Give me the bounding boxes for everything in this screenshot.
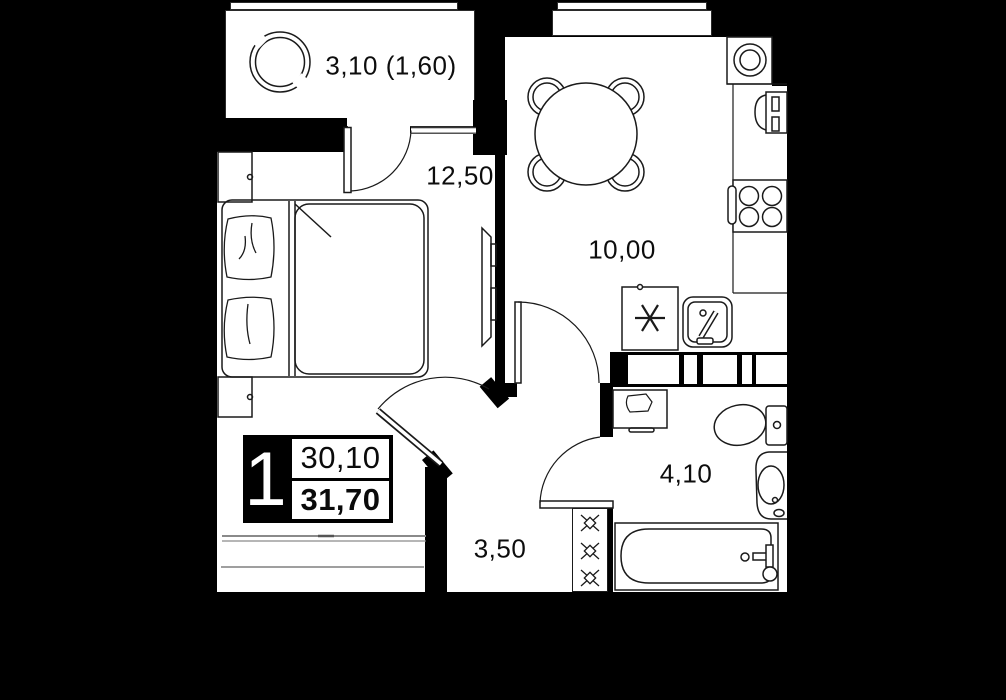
pillows bbox=[224, 216, 274, 360]
balcony-chair bbox=[249, 30, 310, 92]
nightstand-bottom bbox=[218, 377, 253, 417]
room-count: 1 bbox=[244, 436, 286, 523]
balcony-area-label: 3,10 (1,60) bbox=[325, 51, 456, 82]
wardrobe bbox=[221, 536, 426, 567]
plan-linework bbox=[0, 0, 1006, 700]
door-swing-arc bbox=[540, 437, 600, 503]
hallway-area-label: 3,50 bbox=[474, 534, 527, 565]
bedroom-door bbox=[378, 377, 509, 483]
bedroom-area-label: 12,50 bbox=[426, 161, 494, 192]
toilet bbox=[710, 400, 787, 450]
nightstand-top bbox=[218, 152, 253, 202]
vent-shaft-marks bbox=[581, 515, 599, 586]
door-swing-arc bbox=[378, 377, 489, 409]
door-swing-arc bbox=[351, 131, 411, 192]
oven bbox=[755, 92, 787, 133]
bathroom-fixtures bbox=[613, 390, 787, 590]
bathroom-door bbox=[540, 437, 613, 508]
bed bbox=[222, 200, 428, 377]
stove bbox=[728, 180, 787, 232]
tv bbox=[482, 228, 496, 346]
room-count-badge: 1 bbox=[243, 435, 288, 523]
washbasin bbox=[756, 452, 787, 519]
door-swing-arc bbox=[518, 302, 599, 383]
kitchen-door bbox=[515, 302, 599, 383]
bathroom-washer bbox=[613, 390, 667, 432]
fridge bbox=[622, 285, 678, 351]
washing-machine bbox=[727, 37, 772, 84]
kitchen-counter bbox=[622, 84, 787, 350]
kitchen-area-label: 10,00 bbox=[588, 235, 656, 266]
floor-plan: 3,10 (1,60) 12,50 10,00 4,10 3,50 1 30,1… bbox=[0, 0, 1006, 700]
kitchen-sink bbox=[683, 297, 732, 347]
bathtub bbox=[615, 523, 778, 590]
area-value-bottom: 31,70 bbox=[292, 481, 389, 520]
area-badge: 30,10 31,70 bbox=[288, 435, 393, 523]
bathroom-area-label: 4,10 bbox=[660, 459, 713, 490]
area-value-top: 30,10 bbox=[292, 439, 389, 481]
dining-set bbox=[528, 78, 644, 191]
